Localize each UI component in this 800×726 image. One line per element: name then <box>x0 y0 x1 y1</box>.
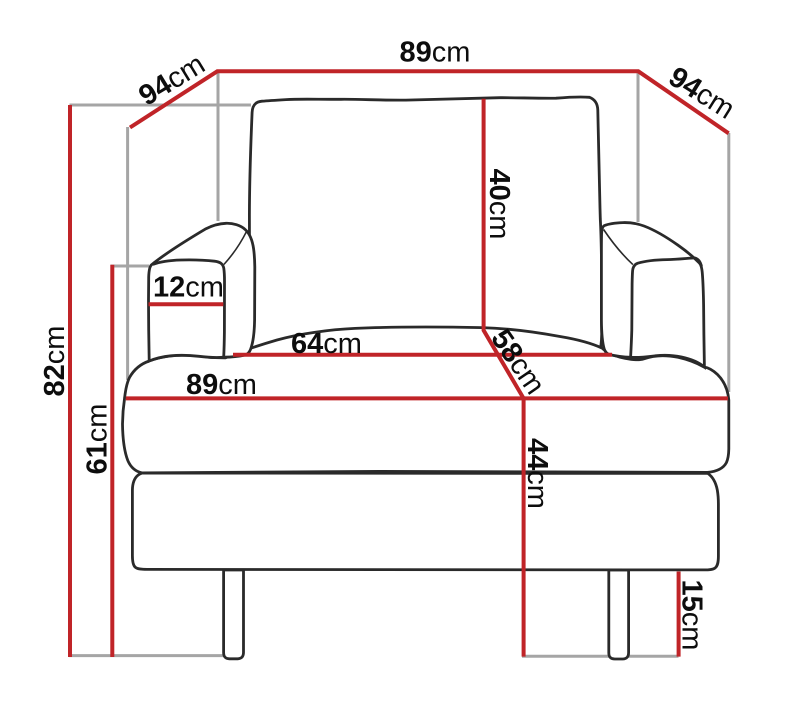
svg-text:61cm: 61cm <box>82 404 114 475</box>
svg-text:44cm: 44cm <box>521 438 553 509</box>
svg-text:12cm: 12cm <box>153 272 224 304</box>
svg-text:82cm: 82cm <box>39 326 71 397</box>
svg-text:40cm: 40cm <box>483 169 515 240</box>
svg-text:89cm: 89cm <box>186 369 257 401</box>
svg-text:15cm: 15cm <box>676 580 708 651</box>
svg-text:64cm: 64cm <box>291 328 362 360</box>
svg-text:89cm: 89cm <box>400 37 471 69</box>
